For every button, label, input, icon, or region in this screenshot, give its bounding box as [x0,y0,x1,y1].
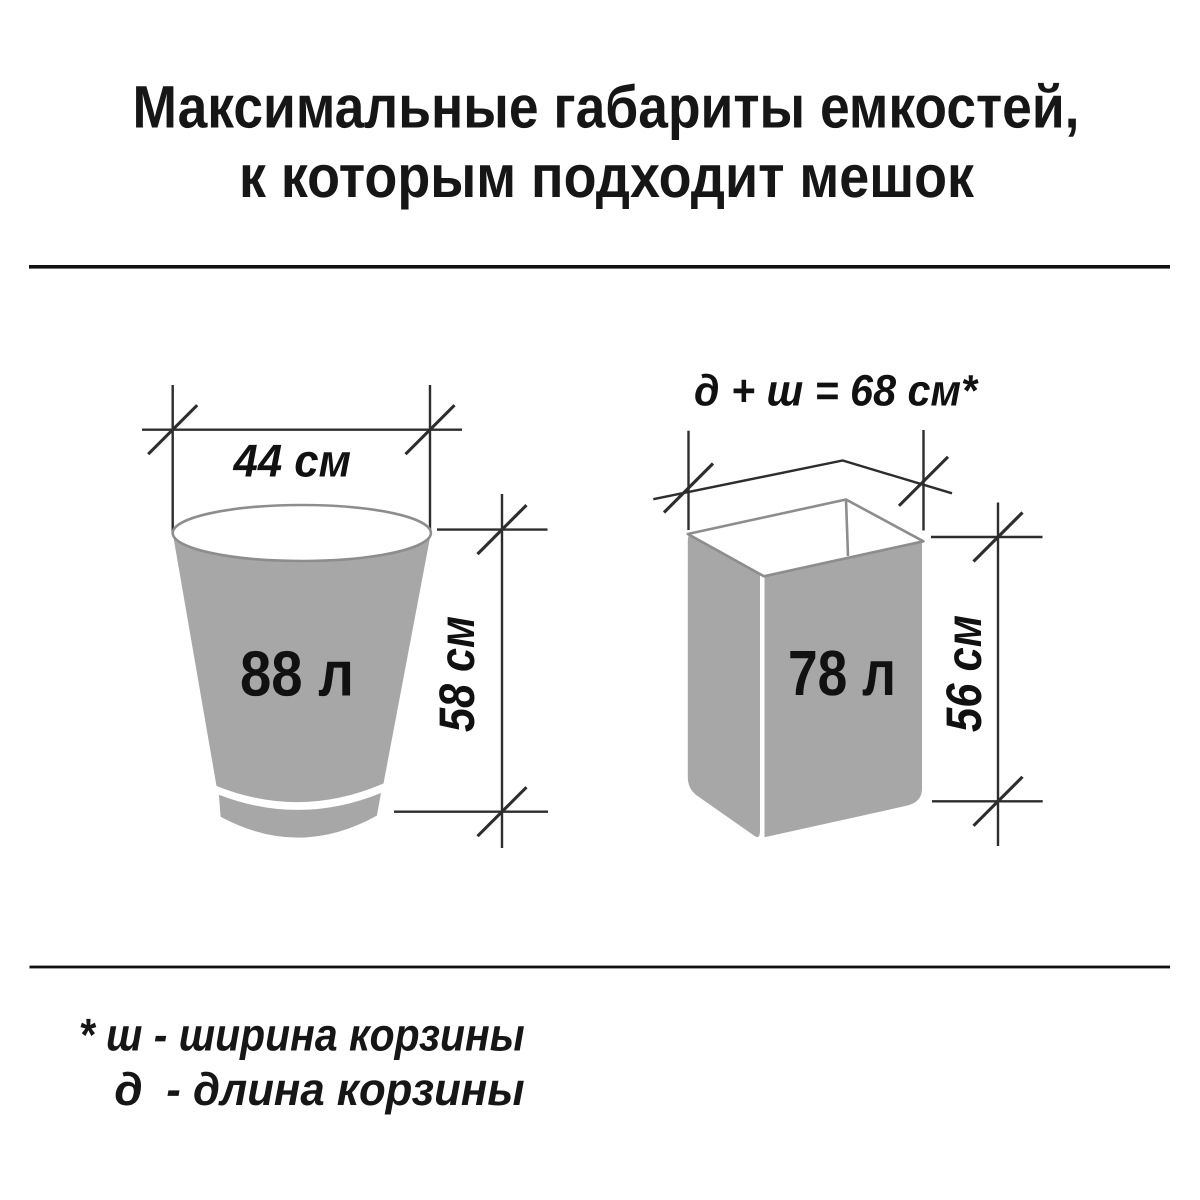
svg-text:к которым подходит мешок: к которым подходит мешок [239,143,975,210]
svg-text:д: д [114,1063,142,1115]
svg-text:58 см: 58 см [429,616,485,732]
svg-text:78 л: 78 л [788,637,896,709]
svg-text:44 см: 44 см [233,434,351,486]
svg-text:56 см: 56 см [936,615,992,732]
svg-text:Максимальные габариты емкостей: Максимальные габариты емкостей, [133,73,1080,140]
svg-text:* ш - ширина корзины: * ш - ширина корзины [79,1009,525,1061]
svg-text:д + ш = 68 см*: д + ш = 68 см* [694,366,979,415]
svg-text:88 л: 88 л [240,637,354,709]
svg-text:- длина корзины: - длина корзины [166,1063,524,1115]
